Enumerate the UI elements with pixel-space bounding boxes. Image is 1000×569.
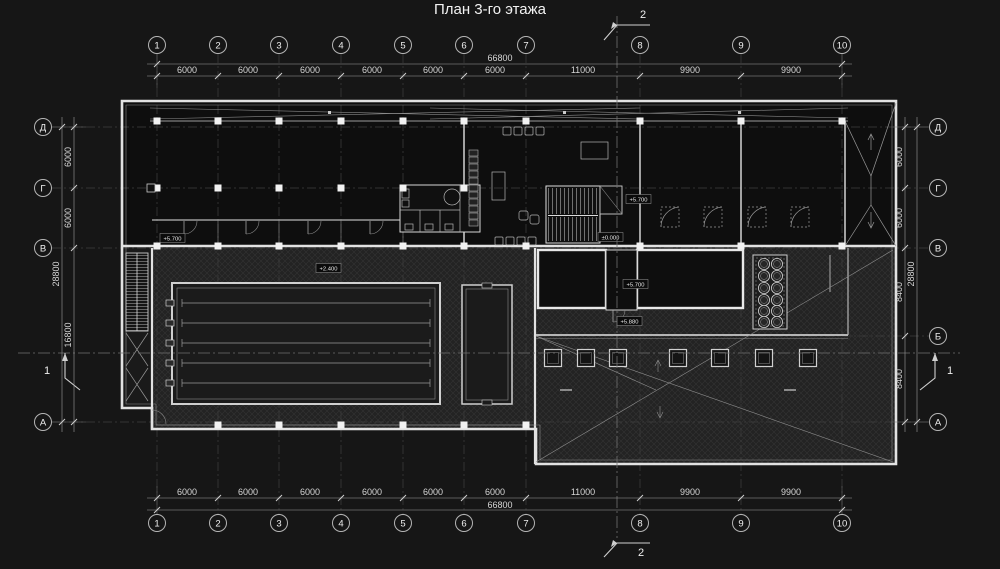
svg-text:6000: 6000 — [300, 487, 320, 497]
svg-text:11000: 11000 — [571, 65, 595, 75]
plant-room-2 — [637, 250, 743, 308]
svg-text:Г: Г — [935, 183, 940, 194]
pool-ladder — [482, 283, 492, 288]
elevation-label-terrace-upper: +5.700 — [623, 280, 648, 289]
svg-text:А: А — [40, 417, 47, 428]
svg-text:6000: 6000 — [423, 65, 443, 75]
svg-text:8400: 8400 — [894, 369, 904, 389]
svg-text:В: В — [935, 243, 941, 254]
svg-text:4: 4 — [338, 40, 343, 51]
svg-text:7: 7 — [523, 40, 528, 51]
elevation-label-hall: +5.700 — [160, 234, 185, 243]
svg-text:8: 8 — [637, 40, 642, 51]
left-dimensions: 6000 6000 16800 28800 — [51, 117, 86, 432]
svg-text:Б: Б — [935, 331, 941, 342]
skylight — [712, 350, 729, 367]
svg-text:6000: 6000 — [362, 487, 382, 497]
pool-ladder — [482, 400, 492, 405]
svg-text:5: 5 — [400, 40, 405, 51]
section-1-label: 1 — [44, 365, 50, 377]
locker-strip — [469, 150, 478, 226]
truss-node — [563, 111, 566, 114]
svg-text:Д: Д — [935, 122, 942, 133]
svg-text:6: 6 — [461, 40, 466, 51]
svg-text:6000: 6000 — [485, 487, 505, 497]
svg-text:10: 10 — [837, 40, 848, 51]
skylight — [800, 350, 817, 367]
svg-text:+5.700: +5.700 — [627, 282, 645, 288]
svg-text:28800: 28800 — [906, 261, 916, 286]
svg-text:6000: 6000 — [177, 487, 197, 497]
page-title: План 3-го этажа — [434, 1, 547, 18]
svg-text:9900: 9900 — [781, 65, 801, 75]
svg-text:6000: 6000 — [423, 487, 443, 497]
upper-hall-fill — [124, 103, 895, 246]
svg-text:+5.700: +5.700 — [630, 197, 648, 203]
svg-text:2: 2 — [215, 518, 220, 529]
svg-text:6000: 6000 — [894, 208, 904, 228]
svg-text:6000: 6000 — [485, 65, 505, 75]
svg-text:9900: 9900 — [781, 487, 801, 497]
svg-text:4: 4 — [338, 518, 343, 529]
svg-text:3: 3 — [276, 40, 281, 51]
jacuzzi-bank — [753, 255, 787, 329]
skylight — [610, 350, 627, 367]
elevation-label-stair-upper: +5.700 — [626, 195, 651, 204]
svg-text:9: 9 — [738, 518, 743, 529]
section-2-marker-bottom: 2 — [604, 540, 650, 559]
svg-text:6000: 6000 — [362, 65, 382, 75]
svg-text:В: В — [40, 243, 46, 254]
svg-text:16800: 16800 — [63, 322, 73, 347]
svg-text:1: 1 — [154, 40, 159, 51]
section-2-label: 2 — [638, 547, 644, 559]
svg-text:6000: 6000 — [300, 65, 320, 75]
svg-text:8: 8 — [637, 518, 642, 529]
svg-text:1: 1 — [154, 518, 159, 529]
svg-text:+5.880: +5.880 — [621, 319, 639, 325]
skylight — [756, 350, 773, 367]
bottom-dimensions: 6000 6000 6000 6000 6000 6000 11000 9900… — [147, 486, 852, 514]
svg-text:6000: 6000 — [63, 147, 73, 167]
truss-node — [328, 111, 331, 114]
skylight — [545, 350, 562, 367]
skylight — [578, 350, 595, 367]
section-2-label: 2 — [640, 9, 646, 21]
plant-room-1 — [538, 250, 606, 308]
right-dimensions: 6000 6000 8400 8400 28800 — [893, 117, 929, 432]
svg-text:6: 6 — [461, 518, 466, 529]
svg-text:6000: 6000 — [238, 65, 258, 75]
svg-text:9900: 9900 — [680, 487, 700, 497]
section-1-label: 1 — [947, 365, 953, 377]
svg-text:6000: 6000 — [177, 65, 197, 75]
elevation-label-terrace-lower: +5.880 — [617, 317, 642, 326]
svg-text:6000: 6000 — [63, 208, 73, 228]
axis-circles-right: Д Г В Б А — [930, 119, 947, 431]
section-1-marker-right: 1 — [920, 353, 953, 390]
svg-text:7: 7 — [523, 518, 528, 529]
section-2-marker-top: 2 — [604, 9, 650, 40]
main-pool — [166, 283, 440, 404]
svg-text:Д: Д — [40, 122, 47, 133]
svg-text:10: 10 — [837, 518, 848, 529]
svg-text:А: А — [935, 417, 942, 428]
svg-text:3: 3 — [276, 518, 281, 529]
svg-text:8400: 8400 — [894, 282, 904, 302]
svg-text:2: 2 — [215, 40, 220, 51]
skylight — [670, 350, 687, 367]
svg-text:+2.400: +2.400 — [320, 266, 338, 272]
svg-text:6000: 6000 — [894, 147, 904, 167]
svg-text:+5.700: +5.700 — [164, 236, 182, 242]
axis-circles-bottom: 1 2 3 4 5 6 7 8 9 10 — [149, 515, 851, 532]
svg-text:9: 9 — [738, 40, 743, 51]
svg-text:28800: 28800 — [51, 261, 61, 286]
svg-text:6000: 6000 — [238, 487, 258, 497]
floor-plan-drawing: +5.700 +5.700 ±0.000 +5.700 +5.880 +2.40… — [0, 0, 1000, 569]
svg-text:66800: 66800 — [487, 53, 512, 63]
truss-node — [738, 111, 741, 114]
small-pool — [462, 283, 512, 405]
top-dimensions: 6000 6000 6000 6000 6000 6000 11000 9900… — [147, 53, 852, 88]
elevation-label-stair-ground: ±0.000 — [598, 233, 623, 242]
axis-circles-top: 1 2 3 4 5 6 7 8 9 10 — [149, 37, 851, 54]
svg-text:11000: 11000 — [571, 487, 595, 497]
floor-plan-page: +5.700 +5.700 ±0.000 +5.700 +5.880 +2.40… — [0, 0, 1000, 569]
stair-flight-upper — [548, 188, 598, 214]
elevation-label-pool: +2.400 — [316, 264, 341, 273]
stair-flight-lower — [548, 217, 598, 241]
svg-text:Г: Г — [40, 183, 45, 194]
svg-text:66800: 66800 — [487, 500, 512, 510]
svg-text:9900: 9900 — [680, 65, 700, 75]
axis-circles-left: Д Г В А — [35, 119, 52, 431]
svg-text:5: 5 — [400, 518, 405, 529]
